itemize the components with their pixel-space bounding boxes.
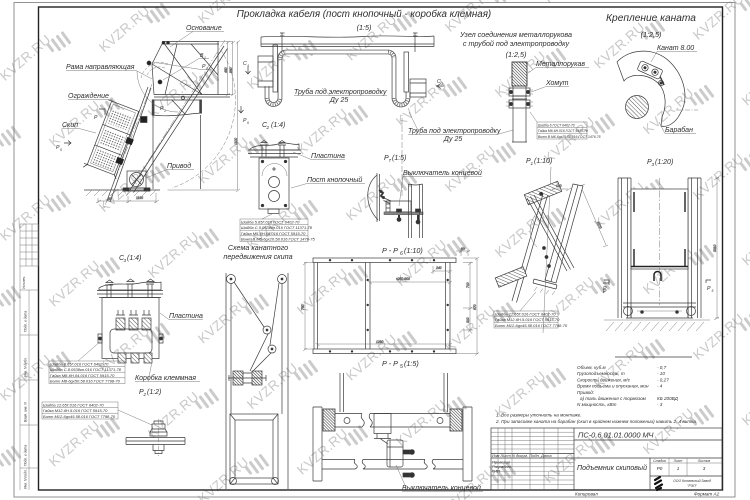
svg-text:Ду 25: Ду 25 [443,136,462,143]
svg-text:Гайка М6-6Н.016 ГОСТ 5915-70: Гайка М6-6Н.016 ГОСТ 5915-70 [538,129,588,133]
svg-text:(1:5): (1:5) [392,155,406,162]
svg-text:Скип: Скип [62,122,78,129]
svg-text:Шайба 5.65Г.016 ГОСТ 6402-70: Шайба 5.65Г.016 ГОСТ 6402-70 [241,220,300,225]
svg-text:Р - Р: Р - Р [382,359,398,368]
svg-text:передвижения скипа: передвижения скипа [223,252,292,261]
svg-text:КБ 200ВД: КБ 200ВД [657,396,679,401]
svg-text:Ду 25: Ду 25 [329,97,348,104]
svg-text:1: 1 [204,56,206,60]
svg-text:Винт В.М6-6gх25.58.016 ГОСТ 14: Винт В.М6-6gх25.58.016 ГОСТ 1476-75 [538,135,601,139]
svg-text:с трубой под электропроводку: с трубой под электропроводку [463,39,570,48]
svg-text:Коробка клеммная: Коробка клеммная [135,374,196,382]
svg-text:Гайка М8-6Н.04.016 ГОСТ 5915-7: Гайка М8-6Н.04.016 ГОСТ 5915-70 [50,373,115,378]
svg-text:6: 6 [247,121,249,125]
svg-text:Пластина: Пластина [169,313,203,320]
svg-text:Металлорукав: Металлорукав [536,61,585,68]
svg-text:(1:5): (1:5) [357,23,372,32]
svg-text:1290: 1290 [376,340,384,344]
svg-text:190: 190 [556,184,562,188]
svg-text:Рама направляющая: Рама направляющая [66,64,135,71]
svg-text:а) таль движения с тормозом: а) таль движения с тормозом [580,396,647,401]
svg-text:Взам. инв. N: Взам. инв. N [24,402,28,422]
svg-text:240: 240 [435,266,442,270]
svg-text:Объем, куб.м: Объем, куб.м [577,365,606,370]
svg-text:790: 790 [301,304,305,310]
svg-text:Шайба С.8.0538кп.016 ГОСТ 1137: Шайба С.8.0538кп.016 ГОСТ 11371-78 [50,367,122,372]
svg-text:Лист: Лист [673,459,683,463]
svg-text:Р0: Р0 [657,466,663,471]
svg-text:2: 2 [266,125,270,130]
svg-text:Привод: Привод [167,162,191,170]
svg-text:Р: Р [94,115,98,121]
svg-text:- 4: - 4 [657,384,663,389]
svg-text:Р - Р: Р - Р [382,246,398,255]
svg-text:"РЭП": "РЭП" [687,484,697,488]
svg-text:Крепление каната: Крепление каната [606,13,696,24]
svg-text:5: 5 [400,364,403,370]
svg-text:Узел соединения металлорукова: Узел соединения металлорукова [459,30,572,39]
svg-text:3: 3 [703,466,706,471]
svg-text:- 3: - 3 [657,402,663,407]
svg-text:Усл.печ.: Усл.печ. [22,276,26,289]
svg-text:Выключатель концевой: Выключатель концевой [402,484,481,492]
svg-text:Хомут: Хомут [545,80,569,87]
svg-text:Схема канатного: Схема канатного [228,243,288,252]
svg-text:Гайка М5-6Н.06.016 ГОСТ 5915-7: Гайка М5-6Н.06.016 ГОСТ 5915-70 [241,231,306,236]
svg-text:- 0,27: - 0,27 [657,377,669,382]
svg-text:Шайба 12.65Г.016 ГОСТ 6402-70: Шайба 12.65Г.016 ГОСТ 6402-70 [495,312,556,317]
svg-text:2. При запасовке каната на бар: 2. При запасовке каната на барабан (скип… [495,418,697,424]
svg-text:2: 2 [205,67,208,71]
svg-text:Болт М8-6gх50.58.016 ГОСТ 7798: Болт М8-6gх50.58.016 ГОСТ 7798-70 [50,378,121,383]
svg-text:Р: Р [707,286,711,292]
svg-text:Пост кнопочный: Пост кнопочный [307,176,362,184]
svg-text:(1:10): (1:10) [404,246,423,255]
svg-text:ч250-800: ч250-800 [396,277,410,281]
svg-text:3: 3 [441,82,443,86]
svg-text:ГИП: ГИП [492,469,500,474]
svg-text:2: 2 [143,392,147,397]
svg-text:(1:5): (1:5) [404,359,419,368]
svg-text:710: 710 [466,282,470,288]
svg-text:(1:10): (1:10) [534,158,552,165]
svg-text:Инв. N дубл.: Инв. N дубл. [24,357,28,377]
svg-text:Листов: Листов [697,459,711,463]
svg-text:Р: Р [603,286,607,292]
svg-text:90: 90 [461,247,465,251]
svg-text:980: 980 [229,67,233,73]
svg-text:Гайка М12-6Н.5.016 ГОСТ 5915-7: Гайка М12-6Н.5.016 ГОСТ 5915-70 [495,317,560,322]
svg-text:480: 480 [224,67,228,73]
svg-text:Инв. N подл.: Инв. N подл. [24,469,28,489]
svg-text:Формат А2: Формат А2 [694,492,720,497]
svg-text:1: 1 [677,466,680,471]
svg-text:Гайка М12-6Н.5.016 ГОСТ 5915-7: Гайка М12-6Н.5.016 ГОСТ 5915-70 [43,408,108,413]
svg-text:Шайба 12.65Г.016 ГОСТ 6402-70: Шайба 12.65Г.016 ГОСТ 6402-70 [43,403,104,408]
svg-text:(1:20): (1:20) [655,159,673,166]
svg-text:(1:2,5): (1:2,5) [641,30,662,39]
svg-text:Привод:: Привод: [577,390,595,395]
svg-text:Труба под электропроводку: Труба под электропроводку [408,127,501,135]
svg-text:- 0,7: - 0,7 [657,365,667,370]
svg-text:1100: 1100 [234,138,238,145]
svg-text:Прокладка кабеля (пост кнопочн: Прокладка кабеля (пост кнопочный - короб… [237,9,491,20]
svg-text:Выключатель концевой: Выключатель концевой [403,169,482,177]
svg-text:Скорость движения, м/с: Скорость движения, м/с [577,377,631,382]
svg-text:Подъемник скиповый: Подъемник скиповый [577,464,647,472]
svg-text:(1:4): (1:4) [271,122,285,129]
svg-text:Винт В.М5-6gх20.58.016 ГОСТ 14: Винт В.М5-6gх20.58.016 ГОСТ 1476-75 [241,236,315,241]
svg-text:970: 970 [473,304,477,310]
svg-text:N мощность, кВт: N мощность, кВт [577,402,617,407]
svg-text:ПС-0,6.01.01.0000 МЧ: ПС-0,6.01.01.0000 МЧ [578,431,654,440]
svg-text:Шайба 8.65Г.016 ГОСТ 6402-70: Шайба 8.65Г.016 ГОСТ 6402-70 [50,362,109,367]
svg-text:Труба под электропроводку: Труба под электропроводку [294,88,387,96]
svg-text:(1:2,5): (1:2,5) [506,50,527,59]
svg-text:(1:4): (1:4) [127,255,141,262]
svg-text:Подп. и дата: Подп. и дата [24,311,28,332]
svg-text:Пластина: Пластина [311,153,345,160]
svg-text:Основание: Основание [186,25,222,32]
svg-text:6: 6 [400,251,403,257]
svg-text:Копировал: Копировал [575,492,598,497]
svg-text:5: 5 [712,289,714,293]
svg-text:3310: 3310 [713,244,717,252]
svg-text:Шайба С.5.0538кп.016 ГОСТ 1137: Шайба С.5.0538кп.016 ГОСТ 11371-78 [241,225,313,230]
svg-text:ООО Котельный Завод: ООО Котельный Завод [673,479,711,483]
svg-text:90: 90 [108,197,112,201]
svg-text:Стадия: Стадия [653,459,666,463]
svg-text:5: 5 [60,148,62,152]
svg-text:Шайба 6 ГОСТ 6402-70: Шайба 6 ГОСТ 6402-70 [538,124,575,128]
svg-text:Канат 8.00: Канат 8.00 [657,45,694,52]
svg-text:1: 1 [164,109,166,113]
svg-text:Ограждение: Ограждение [68,92,109,100]
svg-text:- 10: - 10 [657,371,665,376]
svg-text:Болт М12-6gх45.58.016 ГОСТ 779: Болт М12-6gх45.58.016 ГОСТ 7798-70 [495,323,568,328]
svg-text:Время подъема и опускания, мин: Время подъема и опускания, мин [577,384,649,389]
svg-text:1160: 1160 [136,196,143,200]
svg-text:1. Все размеры уточнить на мон: 1. Все размеры уточнить на монтаже. [496,413,582,418]
svg-text:Подп. и дата: Подп. и дата [24,445,28,466]
svg-text:Изм Лист N докум. Подп. Д: Изм Лист N докум. Подп. Дата [492,453,552,458]
svg-text:Болт М12-6gх45.58.016 ГОСТ 779: Болт М12-6gх45.58.016 ГОСТ 7798-70 [43,414,116,419]
svg-text:310: 310 [466,317,470,323]
svg-text:(1:2): (1:2) [147,389,161,396]
svg-text:Барабан: Барабан [665,126,693,134]
svg-text:Грузоподъемность, т: Грузоподъемность, т [577,371,625,376]
